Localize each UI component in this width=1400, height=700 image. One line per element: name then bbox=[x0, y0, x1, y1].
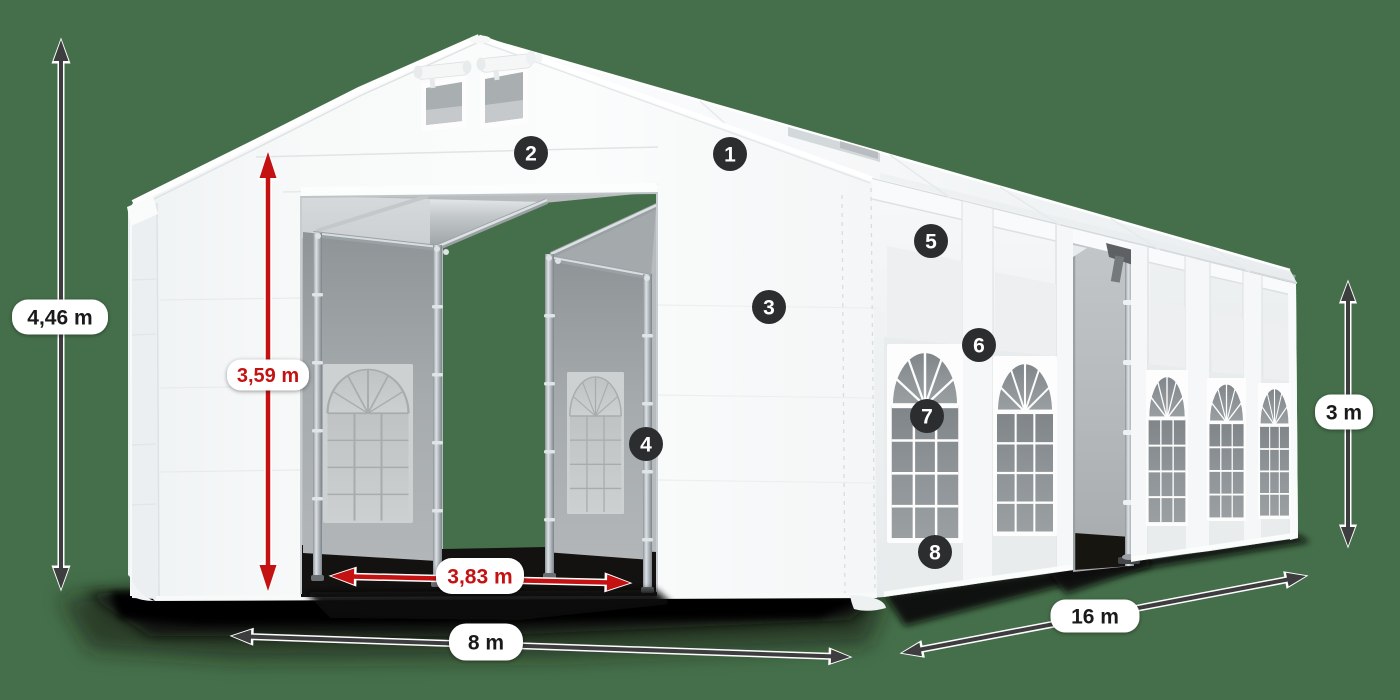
svg-text:8 m: 8 m bbox=[468, 631, 504, 654]
svg-text:7: 7 bbox=[921, 405, 933, 428]
svg-text:16 m: 16 m bbox=[1071, 605, 1119, 628]
svg-text:2: 2 bbox=[525, 142, 537, 165]
svg-text:3: 3 bbox=[763, 296, 775, 319]
svg-text:5: 5 bbox=[925, 230, 937, 253]
svg-text:6: 6 bbox=[973, 334, 985, 357]
svg-text:3,83 m: 3,83 m bbox=[447, 565, 512, 588]
svg-text:3 m: 3 m bbox=[1326, 401, 1362, 424]
svg-text:3,59 m: 3,59 m bbox=[237, 365, 299, 387]
svg-text:8: 8 bbox=[929, 541, 941, 564]
svg-text:4,46 m: 4,46 m bbox=[27, 306, 92, 329]
svg-text:1: 1 bbox=[724, 143, 736, 166]
svg-text:4: 4 bbox=[640, 433, 652, 456]
